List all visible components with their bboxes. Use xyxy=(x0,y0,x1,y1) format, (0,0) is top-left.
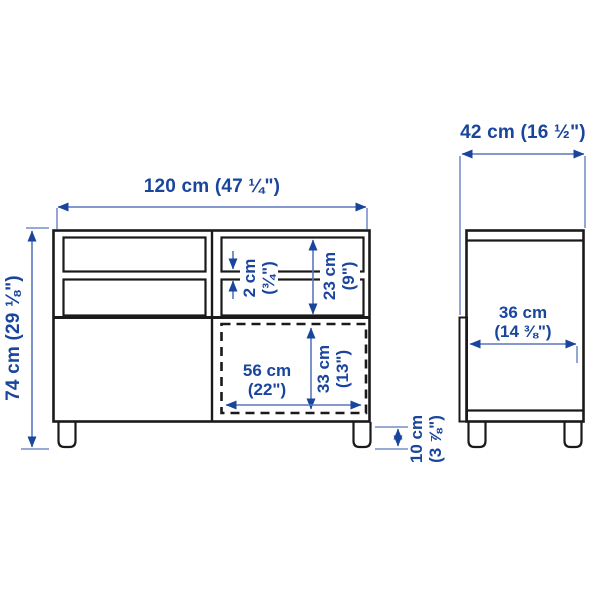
dimension-lines xyxy=(0,0,600,600)
furniture-dimension-diagram: 120 cm (47 ¼") 42 cm (16 ½") 74 cm (29 ⅛… xyxy=(0,0,600,600)
